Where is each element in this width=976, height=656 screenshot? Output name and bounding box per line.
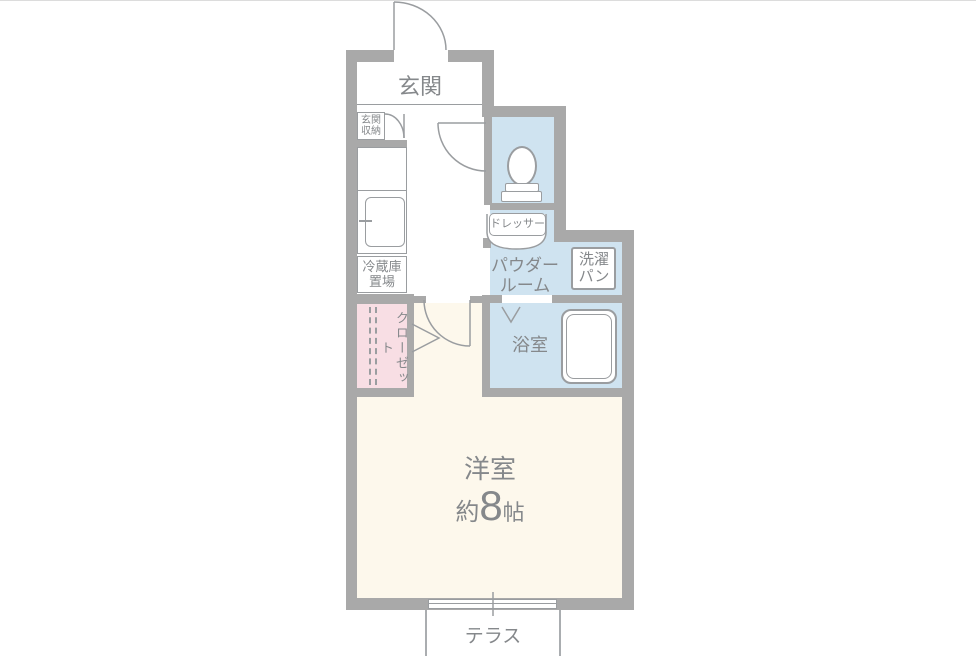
wall-entrance-right	[482, 50, 494, 110]
wall-corridor-toilet	[484, 117, 492, 205]
entrance-step-line	[357, 104, 482, 105]
terrace-right-line	[559, 610, 561, 656]
wall-closet-top	[346, 294, 414, 304]
floor-plan: 玄関 玄関 収納 冷蔵庫 置場 ドレッサー パウダー ルーム 洗濯 パン 浴室 …	[0, 0, 976, 656]
main-room-floor-upper	[414, 303, 482, 397]
fridge-space-label: 冷蔵庫 置場	[358, 260, 406, 290]
main-room-label: 洋室	[420, 455, 560, 485]
wall-left	[346, 50, 357, 610]
terrace-label: テラス	[452, 626, 534, 648]
wall-toilet-bottom	[490, 203, 556, 210]
toilet-bowl	[507, 146, 537, 186]
kitchen-sink-handle	[359, 220, 372, 222]
wall-bath-left	[482, 303, 490, 388]
closet-label: クローゼット	[378, 310, 408, 386]
terrace-left-line	[425, 610, 427, 656]
wall-toilet-right	[554, 106, 566, 242]
sliding-window-rail	[429, 603, 556, 604]
wall-kitchen-stub	[357, 140, 407, 147]
main-room-size: 約8帖	[420, 482, 560, 530]
kitchen-sink	[365, 197, 405, 247]
sliding-window	[428, 599, 557, 609]
dresser-label: ドレッサー	[489, 218, 546, 231]
wall-powder-bath-right	[552, 295, 622, 303]
bathtub-inner	[566, 314, 612, 379]
entrance-storage-label: 玄関 収納	[357, 115, 385, 137]
bathroom-label: 浴室	[509, 335, 551, 356]
screenshot-top-border	[0, 0, 976, 1]
wall-bath-bottom	[482, 388, 622, 397]
wall-closet-bottom	[346, 388, 414, 397]
wall-room-door-stub-left	[414, 296, 426, 303]
entrance-label: 玄関	[382, 74, 458, 99]
closet-hanger-rod	[369, 307, 377, 385]
wall-powder-left-stub	[483, 238, 491, 248]
kitchen-counter-divider	[358, 190, 406, 191]
laundry-pan-label: 洗濯 パン	[573, 251, 615, 286]
wall-powder-bath-left	[482, 295, 502, 303]
wall-room-door-stub-right	[470, 296, 482, 303]
powder-room-label: パウダー ルーム	[479, 256, 571, 295]
toilet-base	[501, 191, 542, 202]
wall-right	[622, 230, 634, 610]
